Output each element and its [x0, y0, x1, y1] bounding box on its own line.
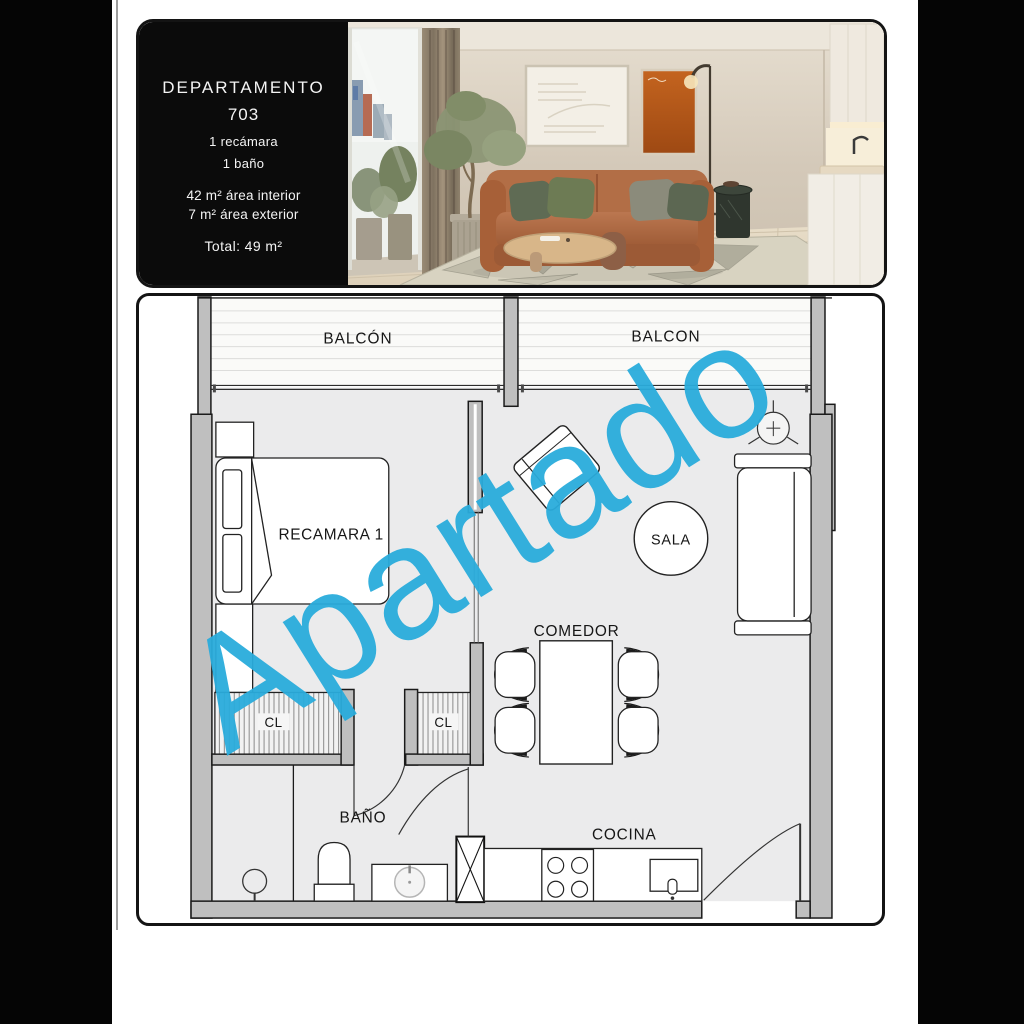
unit-area-total: Total: 49 m² — [205, 238, 283, 254]
label-dining-room: COMEDOR — [534, 623, 620, 640]
unit-area-exterior: 7 m² área exterior — [188, 207, 298, 222]
wall-art-white — [526, 66, 628, 146]
label-balcony-left: BALCÓN — [323, 331, 392, 348]
unit-info-panel: DEPARTAMENTO 703 1 recámara 1 baño 42 m²… — [139, 22, 348, 285]
backdrop-left — [0, 0, 112, 1024]
unit-bathrooms: 1 baño — [223, 156, 265, 171]
backdrop-right — [918, 0, 1024, 1024]
dining-chair — [618, 703, 658, 757]
unit-info-card: DEPARTAMENTO 703 1 recámara 1 baño 42 m²… — [136, 19, 887, 288]
listing-photo — [348, 22, 884, 285]
unit-area-interior: 42 m² área interior — [186, 188, 300, 203]
label-bathroom: BAÑO — [340, 810, 387, 827]
toilet — [318, 843, 350, 885]
floor-plan-drawing: BALCÓN BALCON RECAMARA 1 SALA COMEDOR CL… — [139, 296, 882, 923]
sofa-plan — [735, 454, 812, 635]
dining-chair — [495, 703, 535, 757]
unit-title: DEPARTAMENTO — [162, 78, 325, 98]
label-closet-2: CL — [434, 715, 452, 730]
listing-photo-art — [348, 22, 884, 285]
floor-plan-card: BALCÓN BALCON RECAMARA 1 SALA COMEDOR CL… — [136, 293, 885, 926]
shaft-box — [456, 837, 484, 903]
dining-table — [540, 641, 613, 764]
dining-chair — [618, 648, 658, 702]
flyer-page: DEPARTAMENTO 703 1 recámara 1 baño 42 m²… — [0, 0, 1024, 1024]
dining-chair — [495, 648, 535, 702]
label-living-room: SALA — [651, 532, 691, 548]
window-view — [348, 28, 424, 276]
unit-bedrooms: 1 recámara — [209, 134, 278, 149]
side-table — [714, 181, 752, 238]
kitchen-fixtures — [484, 848, 702, 901]
label-kitchen: COCINA — [592, 827, 657, 844]
shower-head — [243, 869, 267, 893]
page-edge-line — [116, 0, 118, 930]
unit-number: 703 — [228, 105, 259, 125]
